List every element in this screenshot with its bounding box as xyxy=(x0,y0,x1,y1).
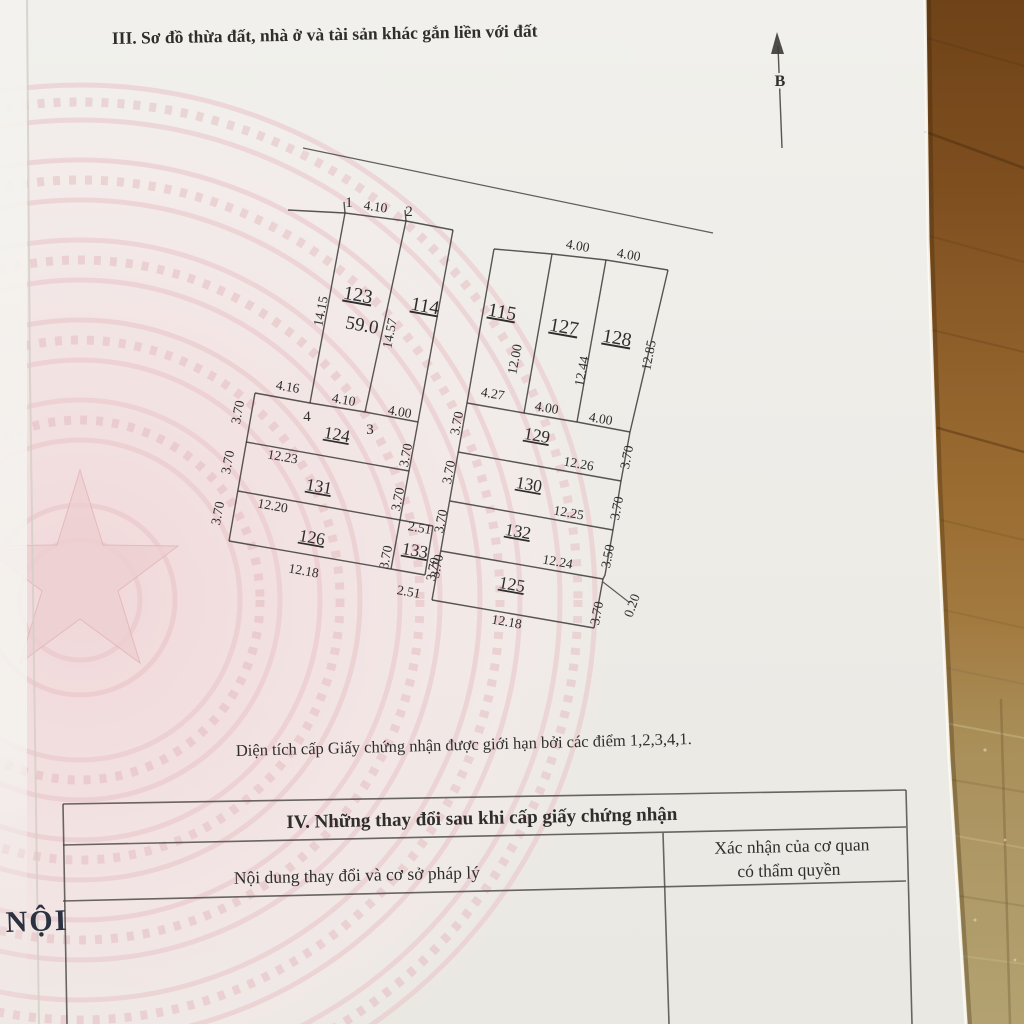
point-1: 1 xyxy=(345,195,353,211)
table-col-right-header-line2: có thẩm quyền xyxy=(737,859,841,881)
page-canvas: III. Sơ đồ thừa đất, nhà ở và tài sản kh… xyxy=(0,0,1024,1024)
photographed-certificate-page: III. Sơ đồ thừa đất, nhà ở và tài sản kh… xyxy=(0,0,1024,1024)
table-col-right-header-line1: Xác nhận của cơ quan xyxy=(714,834,870,858)
point-3: 3 xyxy=(366,422,374,438)
point-2: 2 xyxy=(405,204,413,220)
north-label: B xyxy=(775,73,786,90)
margin-text: NỘI xyxy=(5,904,69,939)
page-left-edge xyxy=(0,0,27,1024)
point-4: 4 xyxy=(303,409,311,425)
